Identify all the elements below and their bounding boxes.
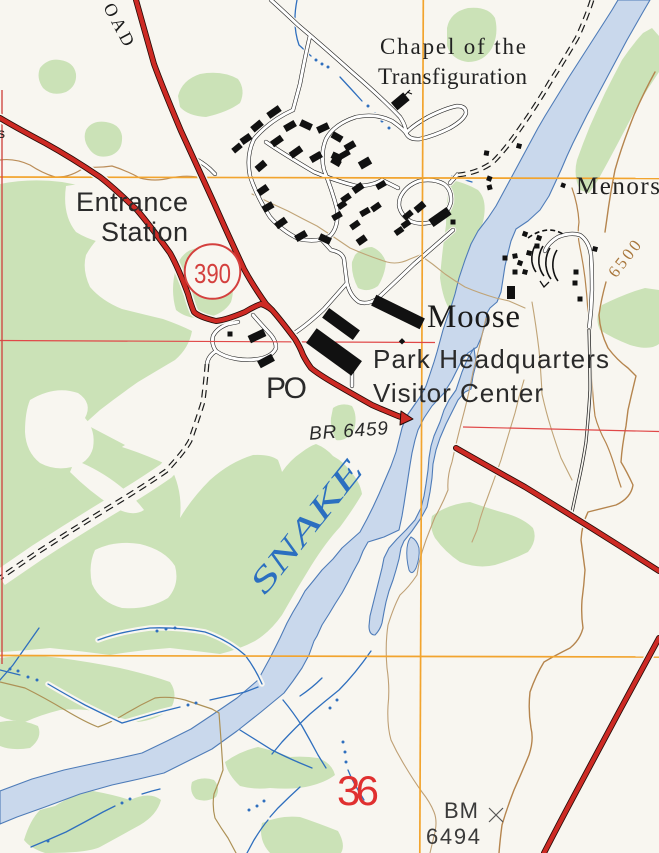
svg-text:36: 36	[337, 767, 379, 814]
svg-text:s: s	[0, 125, 5, 141]
svg-text:Transfiguration: Transfiguration	[378, 64, 528, 89]
svg-text:Park Headquarters: Park Headquarters	[373, 344, 609, 374]
svg-text:Station: Station	[101, 217, 188, 247]
svg-text:6494: 6494	[426, 824, 480, 849]
svg-text:Menors: Menors	[576, 173, 659, 200]
svg-text:Entrance: Entrance	[76, 187, 188, 217]
svg-text:BM: BM	[444, 798, 478, 823]
svg-text:Moose: Moose	[427, 299, 520, 335]
svg-text:Chapel of the: Chapel of the	[380, 34, 526, 59]
svg-text:PO: PO	[266, 372, 307, 405]
svg-text:Visitor Center: Visitor Center	[373, 378, 543, 408]
svg-text:390: 390	[194, 258, 231, 289]
